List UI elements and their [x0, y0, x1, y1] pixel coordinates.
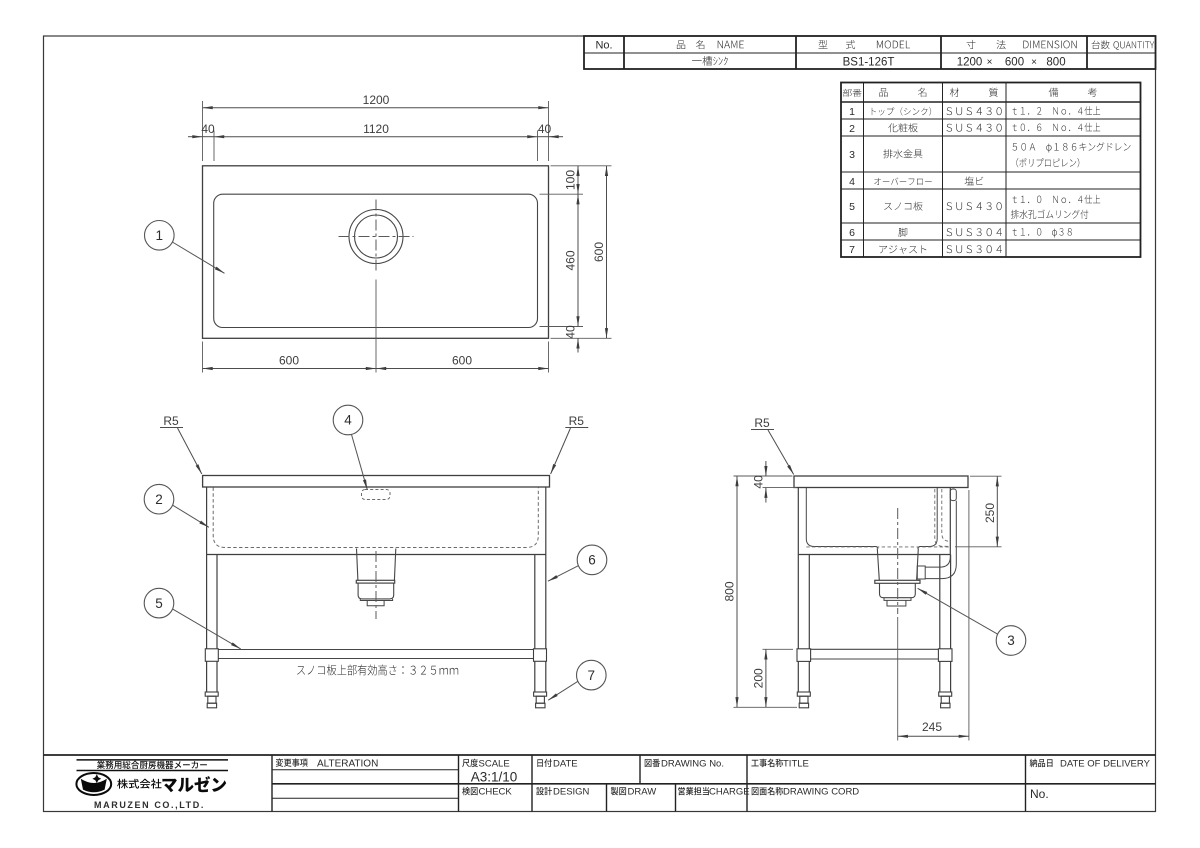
svg-text:6: 6 — [849, 227, 855, 239]
svg-text:5: 5 — [849, 201, 855, 213]
svg-text:SCALE: SCALE — [479, 758, 510, 769]
svg-text:600: 600 — [1005, 57, 1024, 69]
svg-text:A3:1/10: A3:1/10 — [471, 769, 518, 784]
svg-text:245: 245 — [922, 720, 942, 734]
svg-text:4: 4 — [849, 176, 855, 188]
svg-text:R5: R5 — [754, 416, 770, 430]
svg-text:DRAW: DRAW — [628, 787, 657, 798]
svg-text:2: 2 — [155, 492, 163, 507]
svg-text:6: 6 — [588, 553, 596, 568]
svg-text:1120: 1120 — [363, 122, 389, 136]
svg-text:4: 4 — [344, 413, 352, 428]
svg-text:DATE: DATE — [553, 758, 578, 769]
svg-text:800: 800 — [723, 581, 737, 601]
svg-text:250: 250 — [983, 503, 997, 523]
svg-text:3: 3 — [1007, 633, 1015, 648]
svg-text:2: 2 — [849, 123, 855, 135]
svg-text:CHECK: CHECK — [479, 787, 513, 798]
svg-text:TITLE: TITLE — [783, 758, 809, 769]
svg-text:800: 800 — [1046, 57, 1065, 69]
svg-text:No.: No. — [595, 40, 612, 52]
svg-text:40: 40 — [751, 475, 765, 489]
svg-text:100: 100 — [564, 170, 578, 190]
svg-text:DATE OF DELIVERY: DATE OF DELIVERY — [1060, 758, 1151, 769]
svg-text:DRAWING No.: DRAWING No. — [661, 758, 724, 769]
svg-text:40: 40 — [201, 122, 215, 136]
svg-text:×: × — [1031, 57, 1037, 68]
svg-text:5: 5 — [155, 596, 163, 611]
svg-text:600: 600 — [279, 354, 299, 368]
svg-text:R5: R5 — [569, 414, 585, 428]
svg-text:40: 40 — [538, 122, 552, 136]
svg-text:600: 600 — [592, 242, 606, 262]
svg-text:1: 1 — [849, 106, 855, 118]
svg-text:1200: 1200 — [363, 93, 390, 107]
svg-text:40: 40 — [564, 325, 578, 339]
svg-text:200: 200 — [751, 668, 765, 688]
svg-text:CHARGE: CHARGE — [709, 787, 750, 798]
svg-text:MARUZEN CO.,LTD.: MARUZEN CO.,LTD. — [94, 800, 205, 810]
svg-text:BS1-126T: BS1-126T — [843, 57, 895, 69]
svg-text:600: 600 — [452, 354, 472, 368]
svg-text:DRAWING CORD: DRAWING CORD — [783, 787, 859, 798]
svg-text:3: 3 — [849, 149, 855, 161]
svg-text:DESIGN: DESIGN — [553, 787, 590, 798]
svg-text:1: 1 — [156, 228, 164, 243]
svg-text:7: 7 — [849, 244, 855, 256]
svg-text:1200: 1200 — [957, 57, 983, 69]
svg-text:R5: R5 — [163, 414, 179, 428]
svg-text:No.: No. — [1030, 787, 1049, 801]
svg-text:460: 460 — [564, 250, 578, 270]
svg-text:7: 7 — [588, 668, 596, 683]
svg-text:×: × — [987, 57, 993, 68]
svg-text:ALTERATION: ALTERATION — [317, 758, 378, 769]
